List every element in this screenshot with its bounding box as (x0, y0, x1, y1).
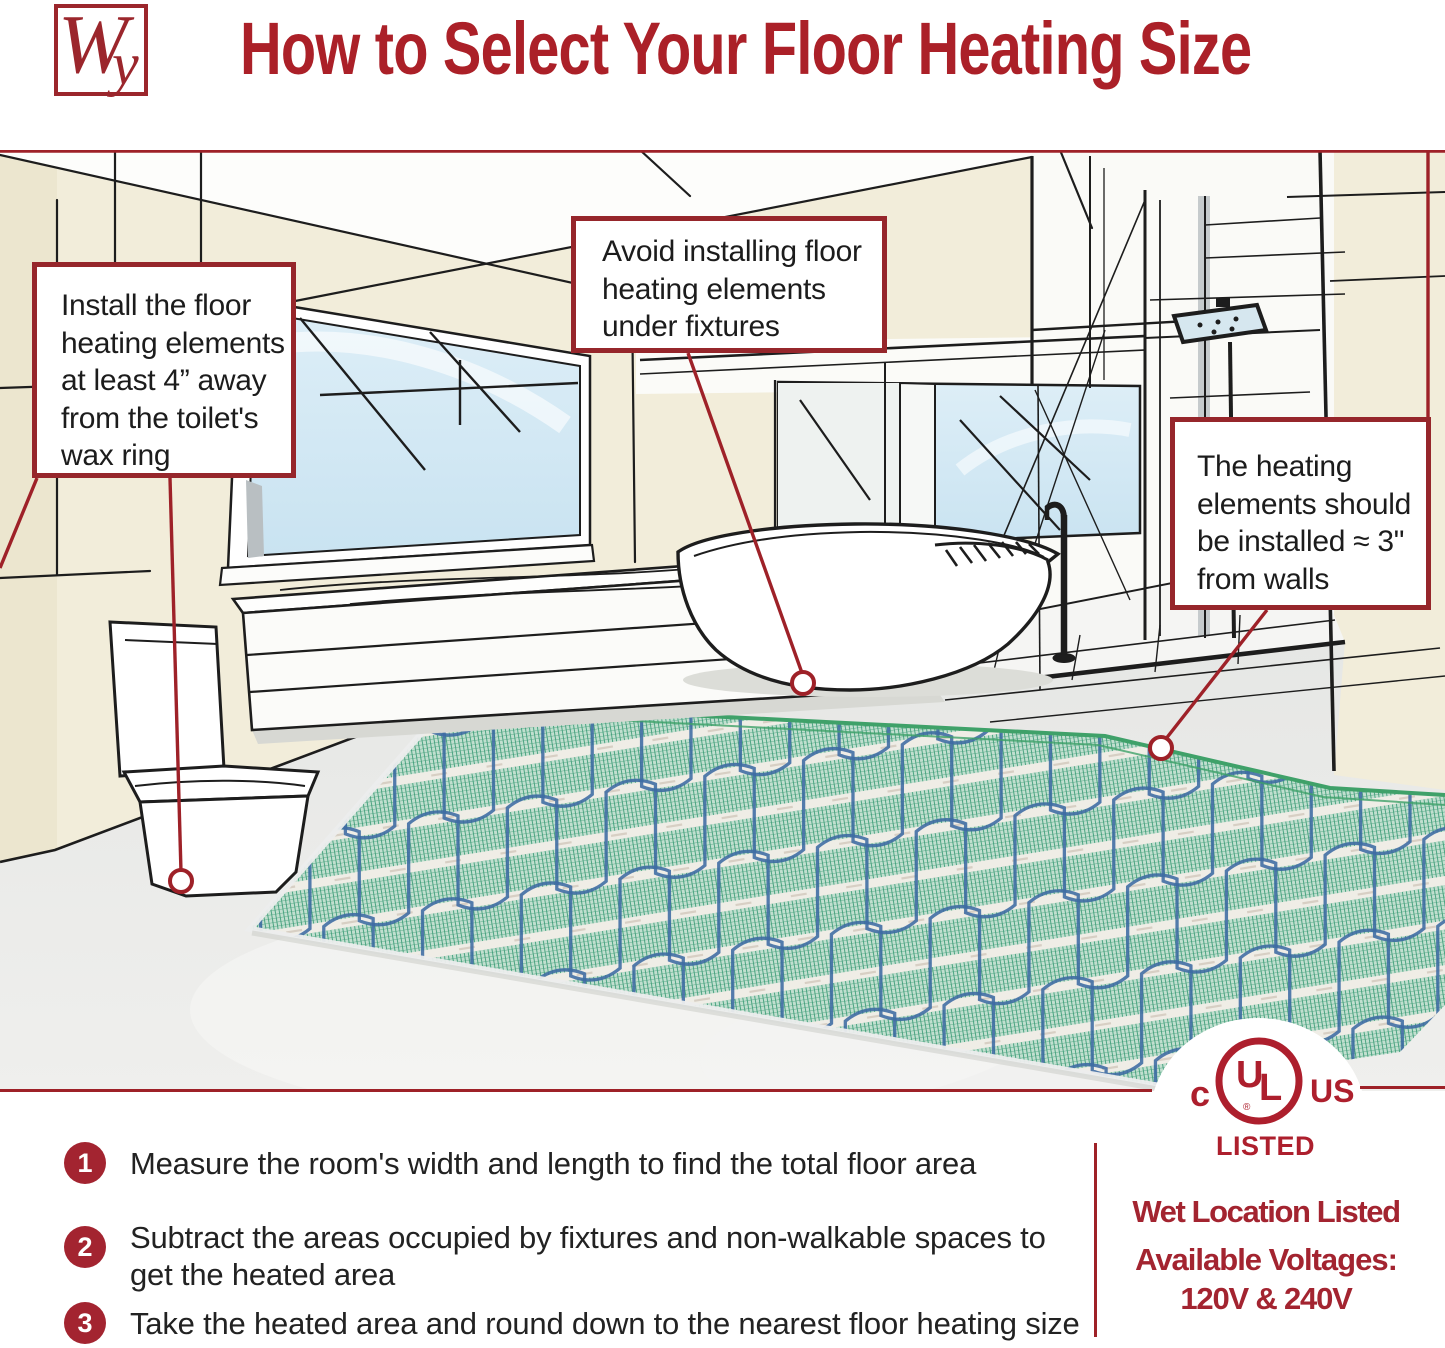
svg-text:L: L (1259, 1067, 1282, 1109)
svg-text:LISTED: LISTED (1216, 1131, 1315, 1161)
svg-text:®: ® (1243, 1102, 1251, 1113)
svg-text:c: c (1190, 1073, 1210, 1114)
svg-text:US: US (1310, 1073, 1354, 1109)
